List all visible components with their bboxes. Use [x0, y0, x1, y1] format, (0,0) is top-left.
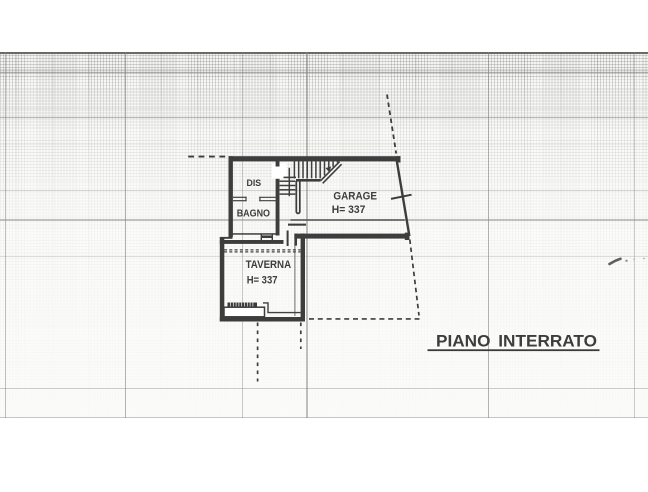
svg-text:TAVERNA: TAVERNA — [246, 259, 292, 271]
svg-text:BAGNO: BAGNO — [237, 208, 271, 219]
svg-text:DIS: DIS — [247, 178, 262, 188]
svg-text:H= 337: H= 337 — [332, 204, 366, 216]
svg-text:H= 337: H= 337 — [247, 274, 278, 286]
svg-text:PIANO INTERRATO: PIANO INTERRATO — [436, 331, 597, 350]
svg-text:GARAGE: GARAGE — [333, 190, 377, 202]
